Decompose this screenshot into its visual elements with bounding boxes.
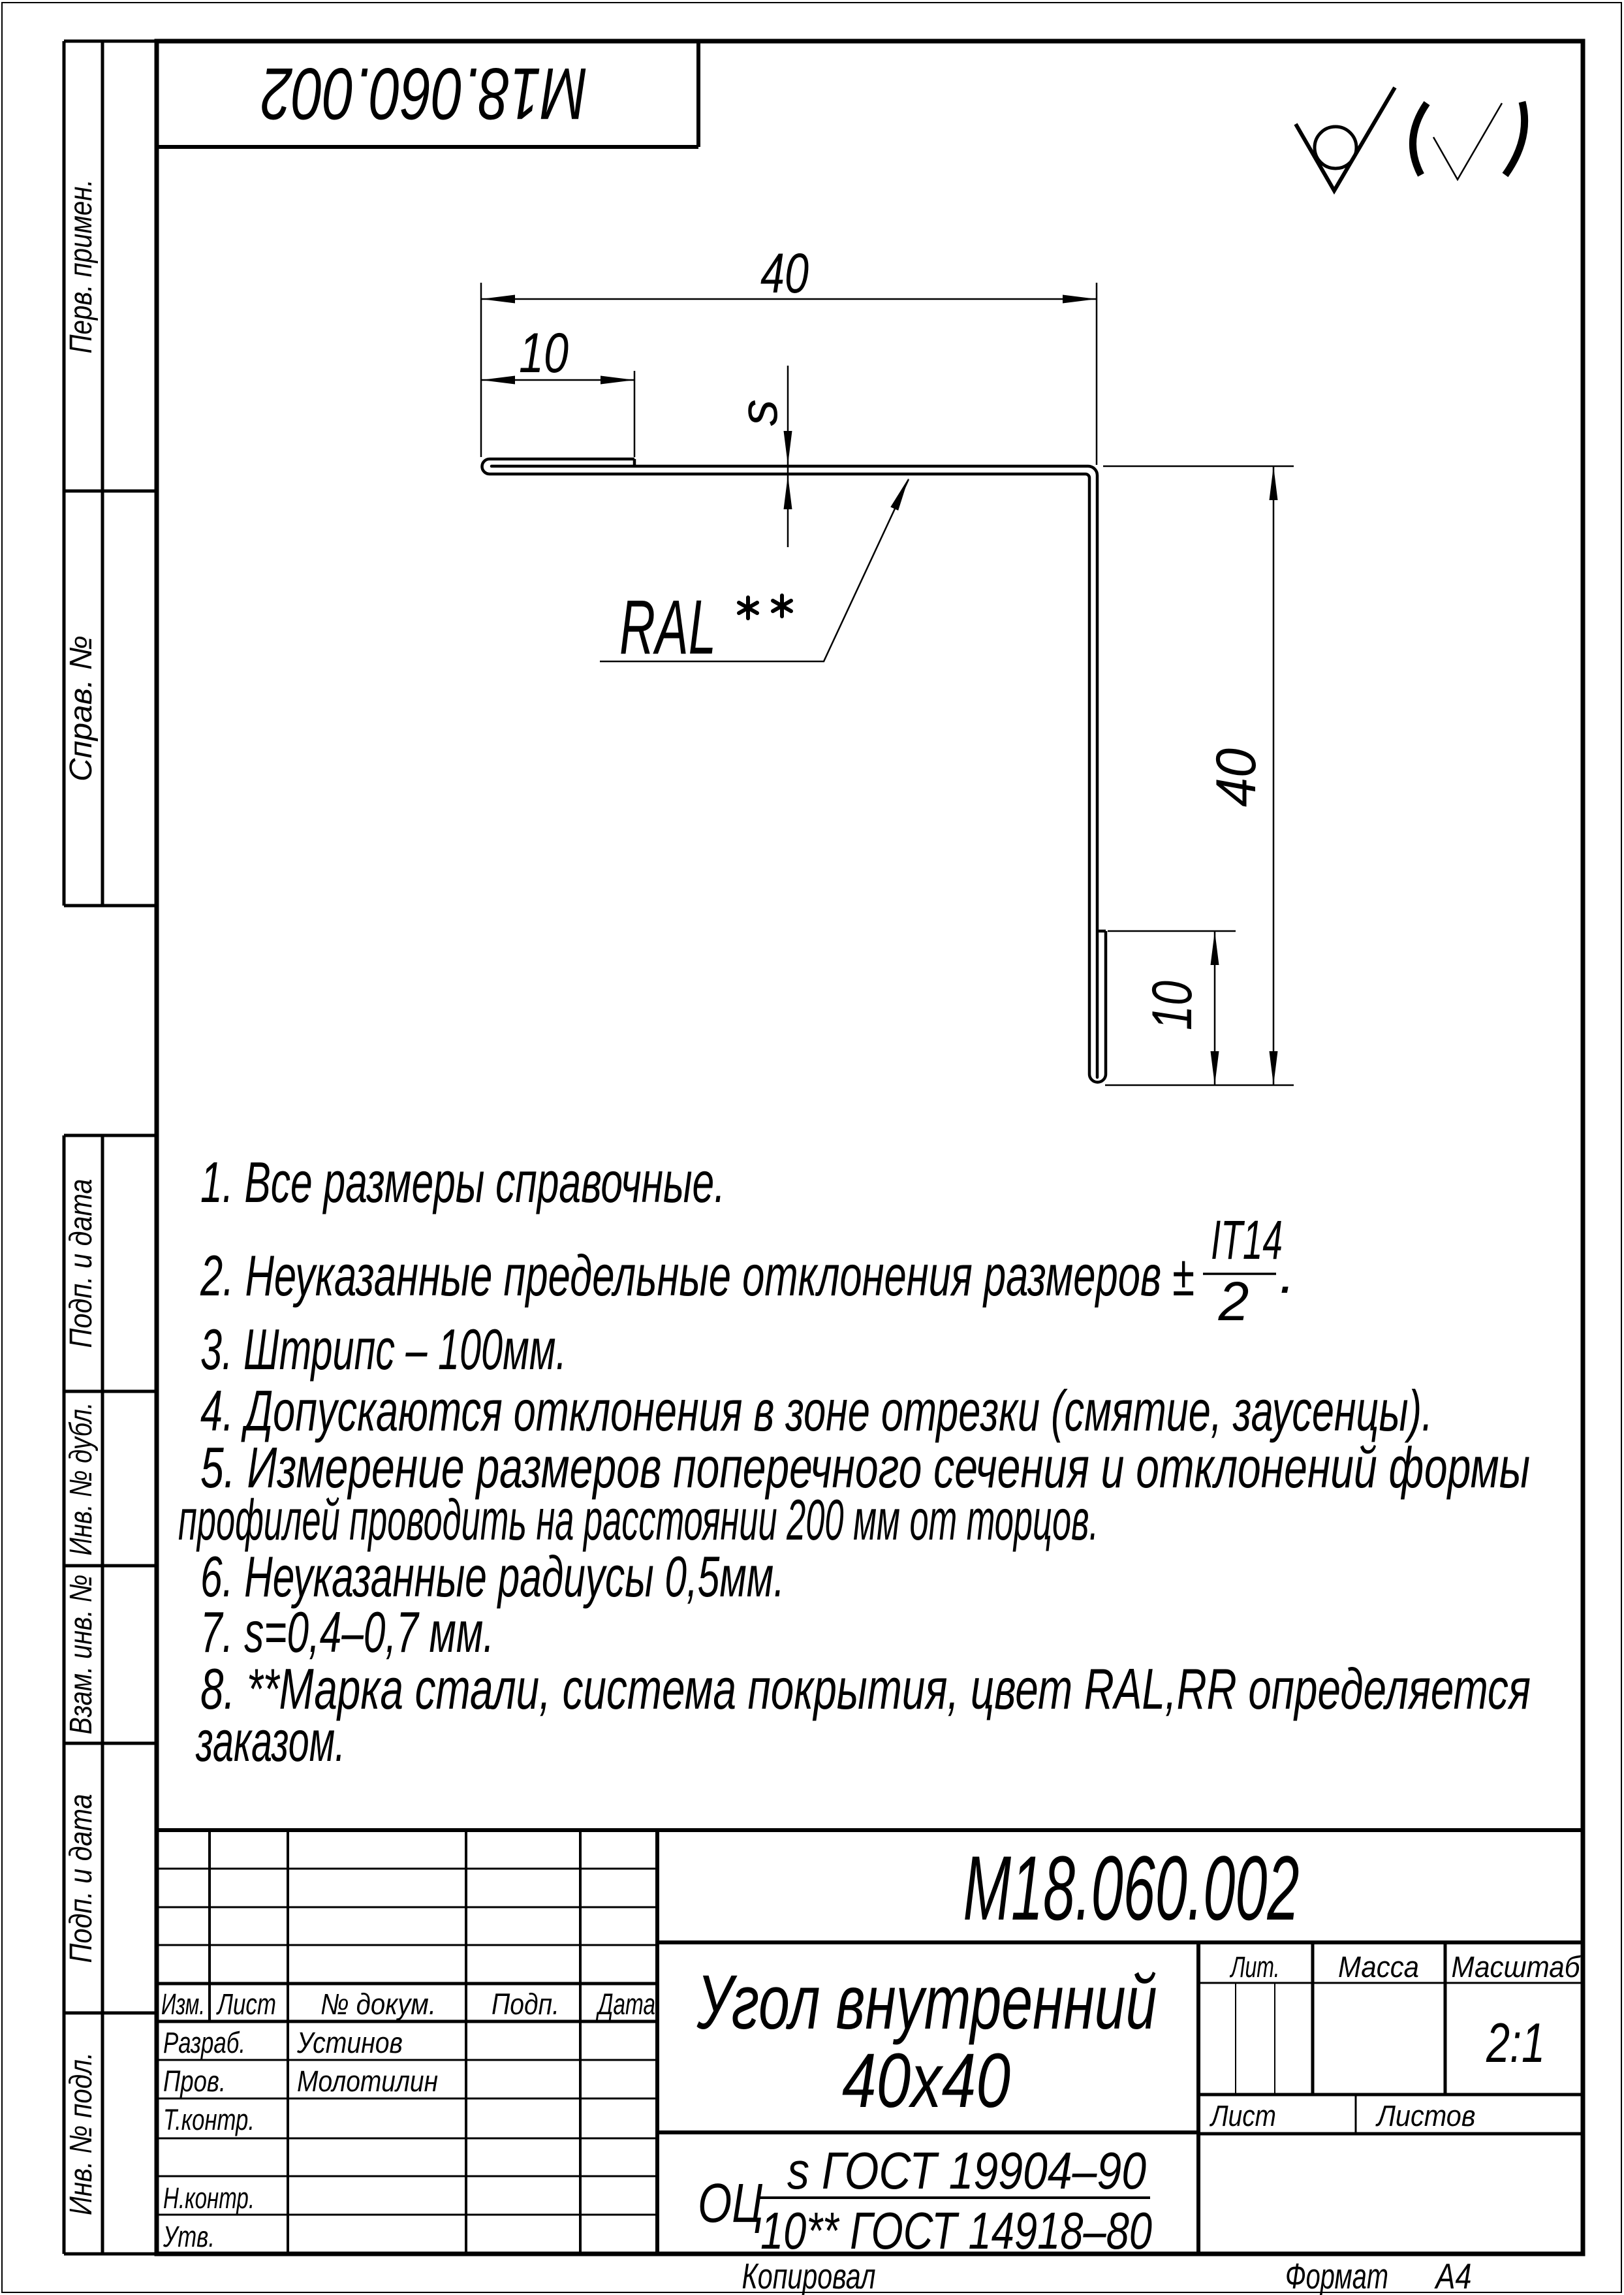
svg-text:№ докум.: № докум. [320,1987,436,2021]
svg-text:Угол внутренний: Угол внутренний [696,1959,1157,2046]
svg-text:Подп. и дата: Подп. и дата [64,1179,99,1348]
svg-text:Формат: Формат [1285,2256,1388,2295]
svg-text:Н.контр.: Н.контр. [163,2181,255,2215]
svg-text:2: 2 [1218,1271,1249,1332]
svg-text:Пров.: Пров. [163,2065,226,2098]
svg-text:Дата: Дата [595,1987,655,2021]
svg-text:Утв.: Утв. [163,2220,215,2253]
svg-text:Подп.: Подп. [492,1987,559,2021]
svg-text:Подп. и дата: Подп. и дата [64,1794,99,1963]
svg-text:заказом.: заказом. [195,1709,345,1773]
svg-text:Разраб.: Разраб. [163,2026,245,2059]
svg-text:2. Неуказанные предельные отк: 2. Неуказанные предельные отклонения раз… [200,1243,1195,1308]
svg-text:4. Допускаются отклонения в з: 4. Допускаются отклонения в зоне отрезки… [200,1378,1433,1443]
svg-text:IT14: IT14 [1211,1209,1283,1271]
svg-text:М18.060.002: М18.060.002 [261,53,587,135]
svg-text:40: 40 [760,242,809,305]
svg-text:Справ. №: Справ. № [64,635,99,782]
svg-text:Взам. инв. №: Взам. инв. № [64,1575,99,1735]
svg-text:s: s [729,400,789,426]
svg-text:Устинов: Устинов [296,2026,403,2059]
svg-text:Лит.: Лит. [1229,1950,1279,1984]
svg-text:А4: А4 [1434,2256,1471,2295]
svg-text:2:1: 2:1 [1486,2012,1545,2074]
svg-text:1. Все размеры справочные.: 1. Все размеры справочные. [200,1150,725,1214]
svg-text:Т.контр.: Т.контр. [163,2103,255,2136]
svg-text:.: . [1279,1241,1295,1305]
svg-text:40х40: 40х40 [842,2038,1010,2124]
svg-text:профилей проводить на расстоян: профилей проводить на расстоянии 200 мм … [178,1487,1099,1552]
svg-text:10: 10 [519,322,569,385]
svg-text:8. **Марка стали, система пок: 8. **Марка стали, система покрытия, цвет… [200,1656,1531,1721]
svg-text:7. s=0,4–0,7 мм.: 7. s=0,4–0,7 мм. [200,1600,494,1664]
svg-text:Масштаб: Масштаб [1452,1950,1582,1984]
svg-text:Копировал: Копировал [742,2256,876,2295]
svg-text:Лист: Лист [216,1987,276,2021]
svg-text:М18.060.002: М18.060.002 [963,1837,1300,1939]
svg-text:10** ГОСТ 14918–80: 10** ГОСТ 14918–80 [760,2202,1152,2260]
svg-text:Перв. примен.: Перв. примен. [64,180,99,354]
svg-text:10: 10 [1141,981,1204,1030]
svg-text:Инв. № подл.: Инв. № подл. [64,2052,99,2215]
svg-text:RAL: RAL [619,584,716,671]
svg-text:s ГОСТ 19904–90: s ГОСТ 19904–90 [787,2142,1146,2200]
svg-text:Масса: Масса [1338,1950,1419,1984]
svg-text:ОЦ: ОЦ [698,2172,764,2234]
svg-text:Изм.: Изм. [161,1987,205,2021]
svg-text:Листов: Листов [1375,2099,1476,2132]
svg-text:40: 40 [1205,748,1268,807]
svg-text:Инв. № дубл.: Инв. № дубл. [64,1402,99,1556]
svg-text:Молотилин: Молотилин [297,2065,438,2098]
svg-text:Лист: Лист [1209,2099,1276,2132]
svg-text:3. Штрипс – 100мм.: 3. Штрипс – 100мм. [200,1317,567,1382]
